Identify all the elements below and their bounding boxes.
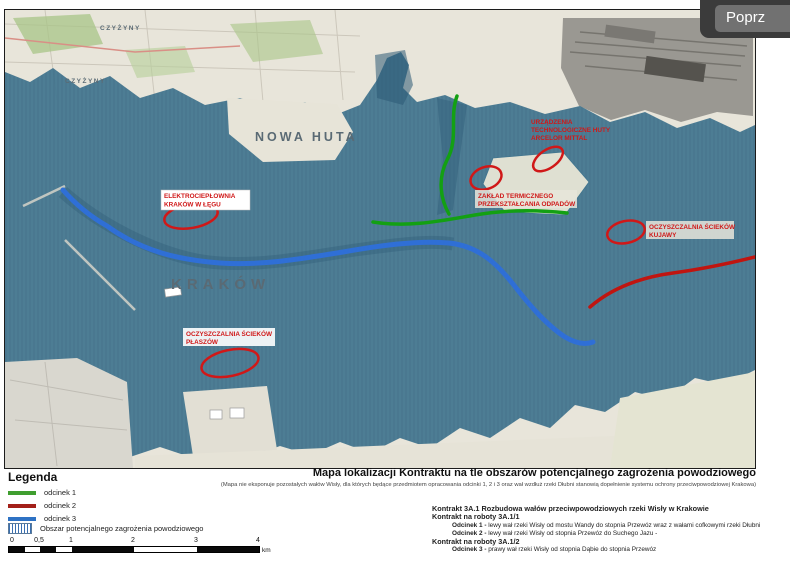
- island-plaszow: [183, 386, 277, 456]
- annotation-text: KRAKÓW W ŁĘGU: [164, 200, 221, 209]
- building: [230, 408, 244, 418]
- scale-tick: 2: [131, 537, 135, 544]
- scale-tick: 4: [256, 537, 260, 544]
- annotation-zaklad: ZAKŁAD TERMICZNEGO PRZEKSZTAŁCANIA ODPAD…: [475, 190, 577, 208]
- legend-label: Obszar potencjalnego zagrożenia powodzio…: [40, 524, 203, 533]
- annotation-text: OCZYSZCZALNIA ŚCIEKÓW: [649, 222, 736, 231]
- annotation-plaszow: OCZYSZCZALNIA ŚCIEKÓW PŁASZÓW: [183, 328, 275, 346]
- scale-segment: [197, 547, 260, 552]
- odcinek-2-label: Odcinek 2 -: [452, 530, 486, 537]
- scale-tick: 0: [10, 537, 14, 544]
- annotation-text: OCZYSZCZALNIA ŚCIEKÓW: [186, 329, 273, 338]
- annotation-elektrocieplownia: ELEKTROCIEPŁOWNIA KRAKÓW W ŁĘGU: [161, 190, 250, 210]
- city-label-nowa-huta: NOWA HUTA: [255, 130, 358, 144]
- odcinek-3-text: prawy wał rzeki Wisły od stopnia Dąbie d…: [488, 546, 656, 553]
- legend-swatch-hatch: [8, 523, 32, 534]
- legend-swatch-blue: [8, 517, 36, 521]
- scale-bar-track: [8, 546, 260, 553]
- odcinek-1-label: Odcinek 1 -: [452, 522, 486, 529]
- legend-label: odcinek 2: [44, 501, 76, 510]
- previous-button[interactable]: Poprz: [715, 5, 790, 32]
- odcinek-1-line: Odcinek 1 - lewy wał rzeki Wisły od most…: [432, 522, 760, 530]
- odcinek-3-line: Odcinek 3 - prawy wał rzeki Wisły od sto…: [432, 546, 760, 554]
- annotation-text: PRZEKSZTAŁCANIA ODPADÓW: [478, 199, 576, 208]
- odcinek-2-text: lewy wał rzeki Wisły od stopnia Przewóz …: [488, 530, 657, 537]
- odcinek-1-text: lewy wał rzeki Wisły od mostu Wandy do s…: [488, 522, 760, 529]
- legend-swatch-green: [8, 491, 36, 495]
- scale-segment: [72, 547, 135, 552]
- annotation-text: ELEKTROCIEPŁOWNIA: [164, 193, 236, 200]
- city-label-czyzyny-1: CZYŻYNY: [100, 24, 141, 32]
- odcinek-3-label: Odcinek 3 -: [452, 546, 486, 553]
- annotation-text: ZAKŁAD TERMICZNEGO: [478, 193, 553, 200]
- annotation-text: TECHNOLOGICZNE HUTY: [531, 127, 611, 134]
- viewer-overlay: Poprz: [700, 0, 790, 38]
- annotation-text: KUJAWY: [649, 232, 677, 239]
- map-subtitle: (Mapa nie eksponuje pozostałych wałów Wi…: [221, 482, 756, 488]
- annotation-kujawy: OCZYSZCZALNIA ŚCIEKÓW KUJAWY: [646, 221, 736, 239]
- annotation-text: PŁASZÓW: [186, 337, 219, 346]
- map-canvas: CZYŻYNY CZYŻYNY NOWA HUTA KRAKÓW ELEKTRO…: [5, 10, 755, 468]
- legend-title: Legenda: [8, 470, 57, 484]
- map-title: Mapa lokalizacji Kontraktu na tle obszar…: [313, 467, 756, 479]
- works2-heading: Kontrakt na roboty 3A.1/2: [432, 538, 760, 546]
- scale-tick: 3: [194, 537, 198, 544]
- scale-segment: [9, 547, 25, 552]
- legend-label: odcinek 1: [44, 488, 76, 497]
- annotation-text: URZĄDZENIA: [531, 119, 573, 126]
- legend-label: odcinek 3: [44, 514, 76, 523]
- map-frame: CZYŻYNY CZYŻYNY NOWA HUTA KRAKÓW ELEKTRO…: [4, 9, 756, 469]
- contract-block: Kontrakt 3A.1 Rozbudowa wałów przeciwpow…: [432, 505, 760, 555]
- city-label-krakow: KRAKÓW: [171, 275, 270, 293]
- works1-heading: Kontrakt na roboty 3A.1/1: [432, 513, 760, 521]
- annotation-text: ARCELOR MITTAL: [531, 135, 587, 142]
- scale-bar: 0 0,5 1 2 3 4 km: [8, 537, 278, 555]
- scale-unit: km: [262, 547, 271, 554]
- city-label-czyzyny-2: CZYŻYNY: [65, 77, 106, 85]
- page: CZYŻYNY CZYŻYNY NOWA HUTA KRAKÓW ELEKTRO…: [0, 0, 790, 561]
- building: [210, 410, 222, 419]
- scale-segment: [40, 547, 56, 552]
- legend-swatch-red: [8, 504, 36, 508]
- scale-tick: 0,5: [34, 537, 44, 544]
- scale-tick: 1: [69, 537, 73, 544]
